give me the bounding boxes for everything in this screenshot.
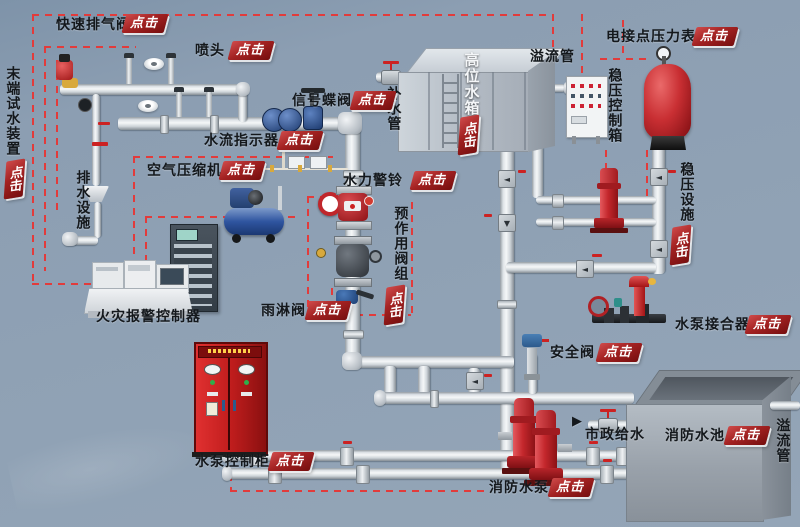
check-valve-glyph: ◄: [504, 175, 510, 184]
click-button-fire-pool[interactable]: 点击: [723, 426, 770, 445]
valve-handle: [592, 254, 602, 257]
check-valve-glyph: ◄: [656, 245, 662, 254]
preaction-valve-red: [334, 186, 372, 230]
label-drainage: 排水设施: [74, 170, 89, 230]
pipe-cap: [374, 390, 386, 406]
label-fire-pool: 消防水池: [665, 429, 725, 444]
label-pressure-facility: 稳压设施: [678, 162, 693, 222]
sprinkler-riser: [126, 58, 132, 84]
quick-exhaust-valve: [56, 56, 82, 90]
sprinkler-riser: [206, 92, 212, 117]
pipe-branch-top: [60, 84, 248, 95]
label-overflow-top: 溢流管: [530, 50, 575, 65]
pipe-joint: [160, 115, 169, 134]
diagram-canvas: ◄ ▼ ◄ ◄ ◄ ◄ ▶: [0, 0, 800, 527]
valve-handle: [518, 170, 526, 173]
valve-handle: [484, 214, 492, 217]
click-button-high-tank[interactable]: 点击: [458, 114, 480, 155]
check-valve-marker: ◄: [650, 240, 668, 258]
test-pressure-gauge: [78, 98, 92, 112]
drain-valve-handle: [98, 122, 110, 125]
concealed-sprinkler: [144, 58, 164, 70]
label-fire-pump: 消防水泵: [489, 481, 549, 496]
click-button-pressure-facility[interactable]: 点击: [670, 224, 692, 265]
pump-control-cabinet: [194, 342, 266, 458]
pipe-elbow: [342, 352, 362, 370]
label-contact-pressure-gauge: 电接点压力表: [606, 30, 696, 45]
leader-dash: [44, 46, 46, 271]
valve-gauge: [316, 248, 326, 258]
label-fire-alarm-controller: 火灾报警控制器: [96, 310, 201, 325]
label-preaction-valve-group: 预作用阀组: [392, 206, 407, 281]
click-button-pump-cabinet[interactable]: 点击: [267, 452, 314, 471]
leader-dash: [411, 202, 413, 314]
leader-dash: [307, 196, 309, 314]
header-valve: [356, 465, 370, 484]
fire-pump-front: [524, 410, 568, 486]
pipe-joint: [210, 115, 219, 134]
flow-down-glyph: ▼: [504, 219, 510, 228]
check-valve-marker: ◄: [650, 168, 668, 186]
label-safety-valve: 安全阀: [550, 346, 595, 361]
leader-dash: [331, 288, 333, 302]
valve-handle: [484, 374, 492, 377]
pressure-control-box: [566, 76, 608, 146]
click-button-signal-valve[interactable]: 点击: [349, 91, 396, 110]
label-overflow-right: 溢流管: [774, 418, 789, 463]
pipe-header-upper: [352, 356, 514, 368]
click-button-safety-valve[interactable]: 点击: [595, 343, 642, 362]
click-button-fire-pump[interactable]: 点击: [547, 478, 594, 497]
click-button-hydraulic-bell[interactable]: 点击: [409, 171, 456, 190]
click-button-end-test[interactable]: 点击: [4, 158, 26, 199]
drop-valve: ◄: [466, 372, 484, 390]
click-button-flow-indicator[interactable]: 点击: [276, 131, 323, 150]
valve-handle: [603, 459, 612, 462]
pipe-joint: [430, 390, 439, 408]
preaction-valve-body: [331, 236, 375, 286]
label-pump-cabinet: 水泵控制柜: [195, 455, 270, 470]
safety-valve: [518, 334, 548, 382]
water-flow-indicator: [262, 106, 302, 132]
leader-dash: [230, 490, 488, 492]
label-end-test-device: 末端试水装置: [4, 66, 19, 156]
label-sprinkler: 喷头: [195, 44, 225, 59]
air-compressor: [222, 182, 288, 246]
check-valve-glyph: ◄: [472, 377, 478, 386]
sprinkler-riser: [168, 58, 174, 84]
leader-dash: [646, 150, 648, 202]
header-valve: [586, 447, 600, 466]
check-valve-marker: ◄: [498, 170, 516, 188]
flow-arrow-icon: ▶: [572, 415, 583, 429]
label-pressure-control-box: 稳压控制箱: [606, 68, 621, 143]
header-valve: [600, 465, 614, 484]
label-hydraulic-bell: 水力警铃: [343, 174, 403, 189]
pipe-joint: [552, 216, 564, 230]
leader-dash: [32, 14, 552, 16]
label-pump-coupler: 水泵接合器: [675, 318, 750, 333]
pipe-joint: [343, 330, 364, 339]
label-signal-valve: 信号蝶阀: [292, 94, 352, 109]
flow-direction-marker: ▼: [498, 214, 516, 232]
pipe-pool-overflow: [770, 401, 800, 410]
label-deluge-valve: 雨淋阀: [261, 304, 306, 319]
pump-coupler: [588, 276, 672, 326]
pipe-drop: [384, 366, 396, 394]
pipe-elbow: [236, 82, 250, 96]
concealed-sprinkler: [138, 100, 158, 112]
label-high-tank: 高位水箱: [463, 52, 480, 116]
leader-dash: [581, 14, 583, 76]
click-button-contact-gauge[interactable]: 点击: [691, 27, 738, 46]
label-flow-indicator: 水流指示器: [204, 134, 279, 149]
leader-dash: [32, 14, 34, 284]
header-valve: [340, 447, 354, 466]
label-quick-exhaust-valve: 快速排气阀: [56, 18, 131, 33]
label-air-compressor: 空气压缩机: [147, 164, 222, 179]
pipe-joint: [497, 300, 517, 309]
click-button-air-compressor[interactable]: 点击: [218, 161, 265, 180]
check-valve-glyph: ◄: [656, 173, 662, 182]
click-button-preaction[interactable]: 点击: [384, 284, 406, 325]
sprinkler-riser: [176, 92, 182, 117]
click-button-sprinkler[interactable]: 点击: [227, 41, 274, 60]
pressure-tank: [642, 46, 696, 152]
pipe-elbow: [62, 232, 78, 246]
stabilizer-pump: [590, 168, 628, 232]
pipe-joint: [552, 194, 564, 208]
valve-handle: [343, 441, 352, 444]
pipe-drain: [92, 94, 100, 186]
pipe-drain-lower: [94, 202, 101, 238]
watermark: [5, 410, 215, 520]
click-button-pump-coupler[interactable]: 点击: [744, 315, 791, 334]
pipe-elbow: [338, 112, 362, 134]
drain-valve-handle: [92, 142, 108, 146]
pipe-drop: [418, 366, 430, 394]
check-valve-glyph: ◄: [582, 265, 588, 274]
leader-dash: [44, 46, 136, 48]
click-button-quick-exhaust[interactable]: 点击: [121, 14, 168, 33]
click-button-deluge[interactable]: 点击: [304, 301, 351, 320]
label-municipal-water: 市政给水: [585, 428, 645, 443]
valve-gauge: [364, 196, 374, 206]
valve-handle: [668, 170, 676, 173]
